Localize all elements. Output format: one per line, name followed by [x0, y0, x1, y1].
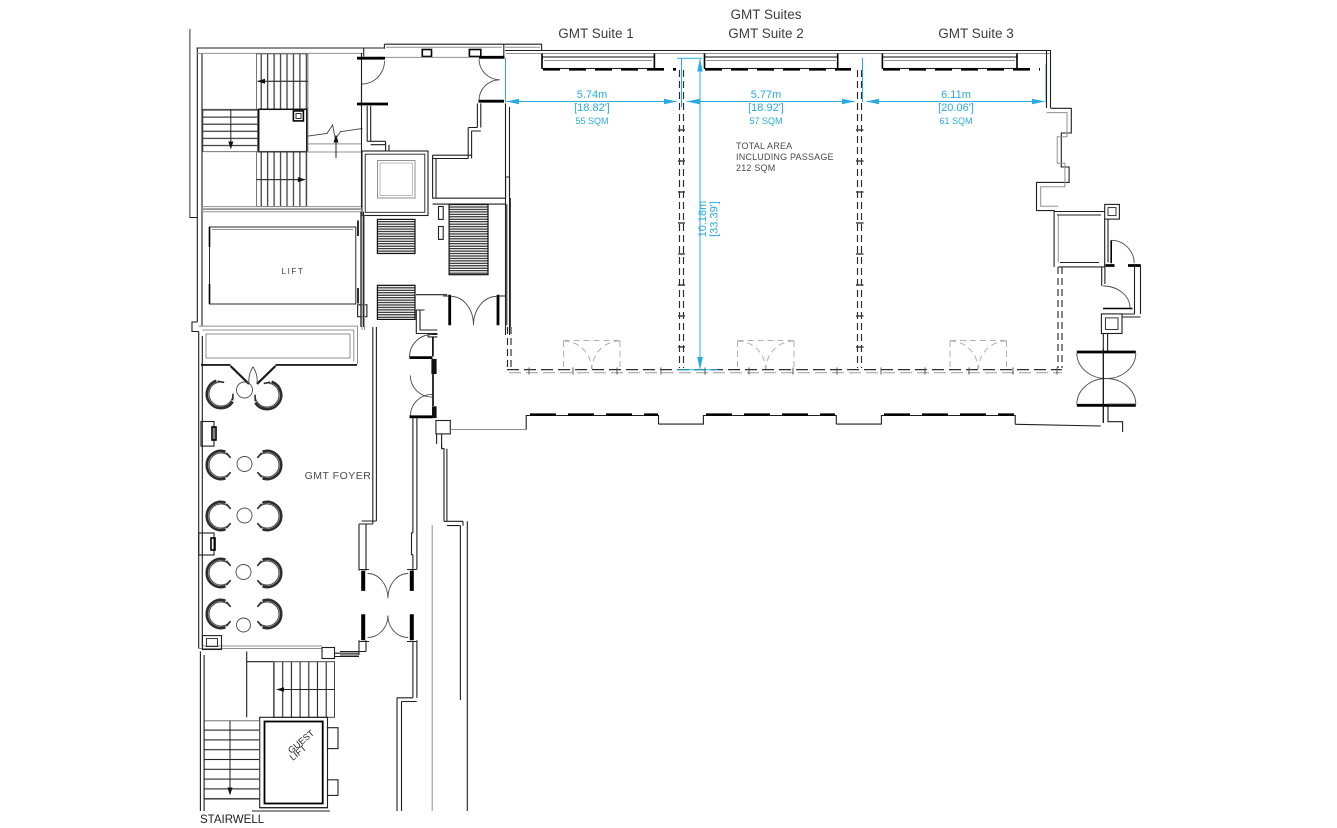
- svg-text:GMT FOYER: GMT FOYER: [305, 470, 372, 482]
- svg-text:[18.92']: [18.92']: [748, 102, 784, 114]
- svg-text:TOTAL AREA: TOTAL AREA: [736, 141, 792, 151]
- svg-text:5.77m: 5.77m: [751, 89, 782, 101]
- svg-text:5.74m: 5.74m: [577, 89, 608, 101]
- svg-text:LIFT: LIFT: [282, 267, 305, 276]
- svg-text:STAIRWELL: STAIRWELL: [200, 814, 265, 826]
- svg-text:6.11m: 6.11m: [941, 89, 971, 101]
- svg-text:GMT Suites: GMT Suites: [730, 7, 801, 22]
- svg-text:[20.06']: [20.06']: [938, 102, 974, 114]
- svg-text:55 SQM: 55 SQM: [575, 116, 608, 126]
- svg-text:GMT Suite 3: GMT Suite 3: [938, 26, 1014, 41]
- svg-text:57 SQM: 57 SQM: [749, 116, 782, 126]
- svg-text:61 SQM: 61 SQM: [939, 116, 972, 126]
- svg-text:INCLUDING PASSAGE: INCLUDING PASSAGE: [736, 152, 834, 162]
- svg-text:[18.82']: [18.82']: [574, 102, 610, 114]
- svg-text:GMT Suite 1: GMT Suite 1: [558, 26, 634, 41]
- svg-text:[33.39']: [33.39']: [709, 201, 721, 237]
- svg-text:GMT Suite 2: GMT Suite 2: [728, 26, 804, 41]
- svg-text:212 SQM: 212 SQM: [736, 163, 775, 173]
- svg-text:10.18m: 10.18m: [697, 201, 709, 238]
